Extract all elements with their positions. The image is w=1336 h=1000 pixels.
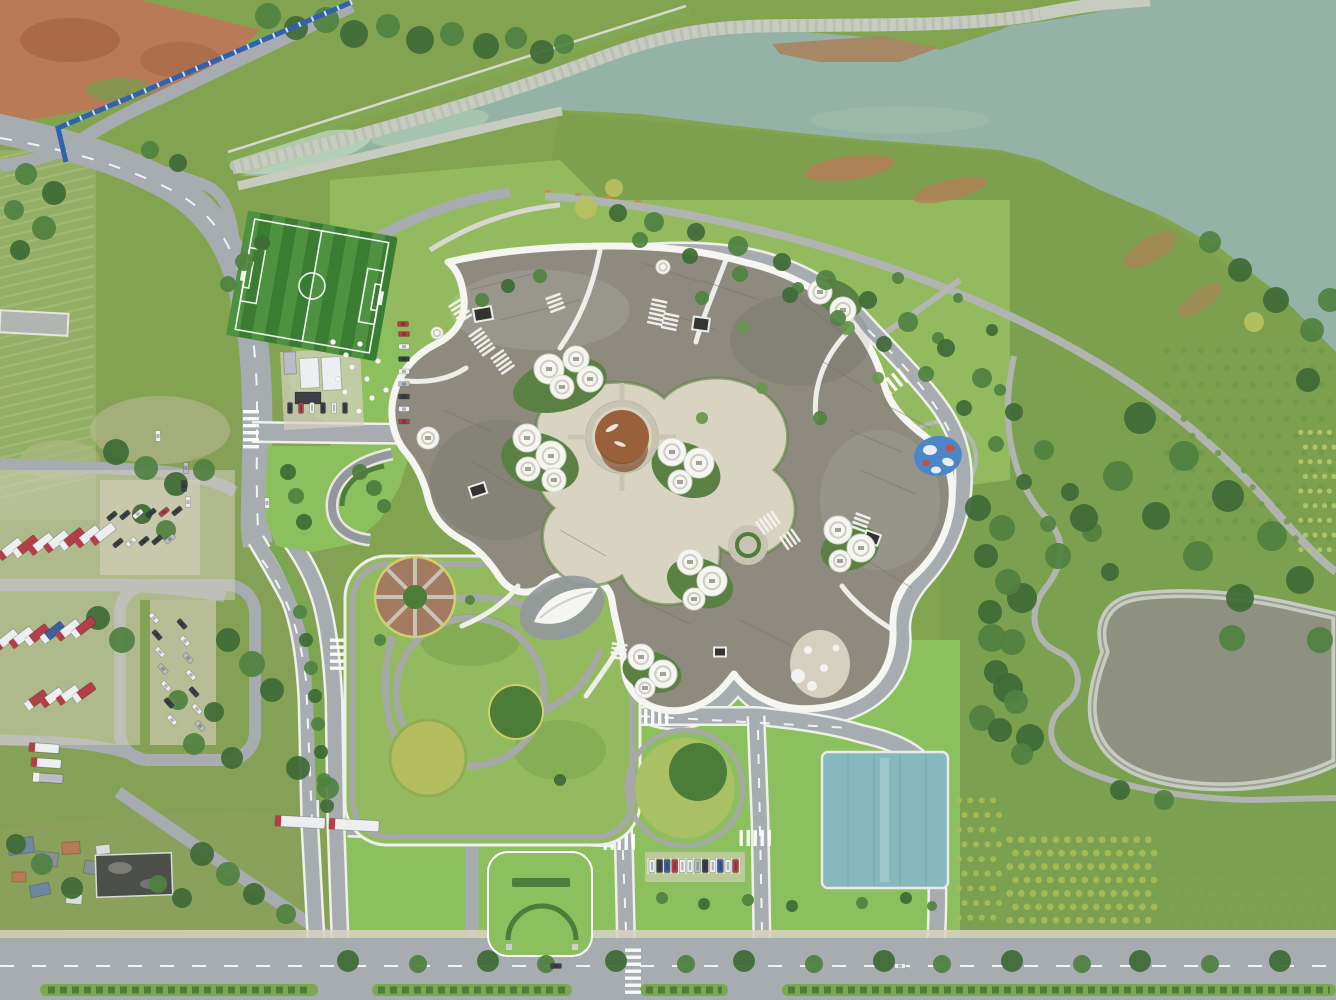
- parked-car: [310, 403, 315, 414]
- plantation-shrub: [1301, 347, 1307, 353]
- terrace-table: [820, 664, 828, 672]
- plantation-shrub: [979, 885, 985, 891]
- tree: [190, 842, 214, 866]
- plantation-shrub: [1145, 890, 1152, 897]
- plantation-shrub: [1116, 850, 1123, 857]
- crosswalk-bar: [625, 949, 641, 952]
- plantation-shrub: [1318, 450, 1324, 456]
- plantation-shrub: [1312, 532, 1317, 537]
- pod-hatch: [696, 461, 702, 465]
- rooftop-pod: [635, 678, 655, 698]
- parked-car: [399, 332, 410, 337]
- lawn-sculpture: [342, 389, 347, 394]
- plantation-shrub: [1318, 347, 1324, 353]
- tree: [15, 163, 37, 185]
- plantation-shrub: [1251, 876, 1257, 882]
- tree: [1263, 287, 1289, 313]
- tree: [254, 235, 270, 251]
- rooftop-pod: [658, 438, 686, 466]
- car-glass: [156, 434, 159, 438]
- plantation-shrub: [1232, 450, 1238, 456]
- tree: [10, 240, 30, 260]
- roadside-car: [264, 497, 269, 508]
- plantation-shrub: [1232, 347, 1238, 353]
- east-terrace: [790, 630, 850, 698]
- container-building: [283, 352, 296, 375]
- pod-hatch: [551, 478, 557, 482]
- plantation-shrub: [1322, 474, 1327, 479]
- plantation-shrub: [973, 871, 979, 877]
- plantation-shrub: [1172, 535, 1178, 541]
- plantation-shrub: [1070, 903, 1077, 910]
- rooftop-pod: [847, 534, 875, 562]
- plantation-shrub: [1292, 433, 1298, 439]
- plantation-shrub: [1198, 518, 1204, 524]
- tree: [813, 411, 827, 425]
- pod-hatch: [638, 655, 644, 659]
- plantation-shrub: [1308, 488, 1313, 493]
- plantation-shrub: [1267, 382, 1273, 388]
- roadside-car: [398, 322, 409, 327]
- tree: [501, 279, 515, 293]
- car-glass: [651, 862, 653, 870]
- plantation-shrub: [1215, 347, 1221, 353]
- street-tree: [1073, 955, 1091, 973]
- retention-pond: [1092, 594, 1336, 787]
- plantation-shrub: [1298, 488, 1303, 493]
- tree: [953, 293, 963, 303]
- truck-trailer: [275, 815, 326, 829]
- tree: [216, 862, 240, 886]
- crosswalk-bar: [768, 830, 771, 846]
- plantation-shrub: [1206, 501, 1212, 507]
- plantation-shrub: [1145, 863, 1152, 870]
- plantation-shrub: [1133, 890, 1140, 897]
- plantation-shrub: [1024, 903, 1031, 910]
- plantation-shrub: [1321, 905, 1327, 911]
- tree: [609, 204, 627, 222]
- plantation-shrub: [1257, 891, 1263, 897]
- plantation-shrub: [1241, 399, 1247, 405]
- pod-hatch: [677, 480, 683, 484]
- terrace-paving: [790, 630, 850, 698]
- tree: [255, 3, 281, 29]
- pod-hatch: [817, 290, 823, 294]
- tree: [656, 892, 668, 904]
- plantation-shrub: [1104, 877, 1111, 884]
- crosswalk-bar: [747, 830, 750, 846]
- plantation-shrub: [1298, 518, 1303, 523]
- plantation-shrub: [1298, 430, 1303, 435]
- tree: [1040, 516, 1056, 532]
- plantation-shrub: [1087, 917, 1094, 924]
- car-glass: [554, 964, 558, 967]
- tree: [900, 892, 912, 904]
- plantation-shrub: [1012, 850, 1019, 857]
- plantation-shrub: [1041, 917, 1048, 924]
- tree: [554, 774, 566, 786]
- plantation-shrub: [1258, 433, 1264, 439]
- plantation-shrub: [1189, 399, 1195, 405]
- pod-hatch: [642, 686, 648, 690]
- tree: [978, 600, 1002, 624]
- plantation-shrub: [1268, 920, 1274, 926]
- tree: [377, 499, 391, 513]
- plantation-shrub: [973, 841, 979, 847]
- car-glass: [689, 862, 691, 870]
- playground-shape: [931, 467, 941, 474]
- plantation-shrub: [1322, 444, 1327, 449]
- tree: [876, 336, 892, 352]
- tree: [988, 436, 1004, 452]
- plantation-shrub: [1312, 503, 1317, 508]
- plantation-shrub: [1286, 905, 1292, 911]
- roof-wear: [108, 862, 132, 874]
- roadside-car: [185, 496, 190, 507]
- tree: [696, 412, 708, 424]
- crosswalk-bar: [243, 410, 259, 413]
- plantation-shrub: [1116, 903, 1123, 910]
- plantation-shrub: [1122, 890, 1129, 897]
- plantation-shrub: [1284, 347, 1290, 353]
- pod-hatch: [835, 528, 841, 532]
- shrub-circle-green: [489, 685, 543, 739]
- tree: [530, 40, 554, 64]
- plantation-shrub: [1224, 399, 1230, 405]
- plantation-shrub: [1006, 890, 1013, 897]
- pod-hatch: [587, 377, 593, 381]
- tree: [898, 312, 918, 332]
- rooftop-pod: [824, 516, 852, 544]
- plantation-shrub: [956, 797, 962, 803]
- car-glass: [402, 382, 406, 385]
- plantation-shrub: [1312, 444, 1317, 449]
- crosswalk-bar: [754, 830, 757, 846]
- plantation-shrub: [1280, 920, 1286, 926]
- plantation-shrub: [1058, 877, 1065, 884]
- plantation-shrub: [1215, 382, 1221, 388]
- plantation-shrub: [1303, 503, 1308, 508]
- tree: [1257, 521, 1287, 551]
- tree: [352, 464, 368, 480]
- boulevard-median: [40, 984, 1336, 996]
- plantation-shrub: [1041, 863, 1048, 870]
- plantation-shrub: [1298, 876, 1304, 882]
- car-glass: [186, 500, 189, 504]
- plantation-shrub: [1309, 876, 1315, 882]
- parked-car: [679, 860, 685, 873]
- plantation-shrub: [1128, 877, 1135, 884]
- car-glass: [322, 404, 324, 411]
- parked-car: [343, 403, 348, 414]
- plantation-shrub: [1047, 903, 1054, 910]
- truck: [33, 772, 64, 783]
- truck: [275, 815, 326, 829]
- plantation-shrub: [1216, 876, 1222, 882]
- parked-car: [725, 860, 731, 873]
- plantation-shrub: [1064, 863, 1071, 870]
- plantation-shrub: [1206, 399, 1212, 405]
- plantation-shrub: [1303, 474, 1308, 479]
- plantation-shrub: [996, 812, 1002, 818]
- circle-inner-shrubs: [669, 743, 727, 801]
- car-glass: [333, 404, 335, 411]
- car-glass: [311, 404, 313, 411]
- plantation-shrub: [1172, 433, 1178, 439]
- tree: [1154, 790, 1174, 810]
- plantation-shrub: [1249, 347, 1255, 353]
- flower-circle-yellow: [390, 720, 466, 796]
- plantation-shrub: [1310, 467, 1316, 473]
- plantation-shrub: [1327, 891, 1333, 897]
- street-tree: [933, 955, 951, 973]
- tree: [728, 236, 748, 256]
- plantation-shrub: [1006, 836, 1013, 843]
- plantation-shrub: [973, 812, 979, 818]
- truck-cab: [275, 815, 282, 826]
- roadside-car: [895, 964, 906, 969]
- tree: [782, 287, 798, 303]
- plantation-shrub: [1122, 836, 1129, 843]
- plantation-shrub: [1327, 920, 1333, 926]
- pod-hatch: [837, 559, 843, 563]
- tree: [221, 747, 243, 769]
- plantation-shrub: [1258, 364, 1264, 370]
- car-glass: [727, 862, 729, 870]
- plantation-shrub: [990, 797, 996, 803]
- street-tree: [477, 950, 499, 972]
- crosswalk-bar: [243, 417, 259, 420]
- pod-hatch: [425, 436, 431, 440]
- tree: [204, 702, 224, 722]
- plantation-shrub: [1303, 444, 1308, 449]
- plantation-shrub: [1047, 850, 1054, 857]
- plantation-shrub: [1087, 863, 1094, 870]
- car-glass: [402, 395, 406, 398]
- plantation-shrub: [1110, 917, 1117, 924]
- tree: [695, 291, 709, 305]
- rooftop-pod: [542, 468, 566, 492]
- plantation-shrub: [1298, 547, 1303, 552]
- plantation-shrub: [996, 900, 1002, 906]
- crosswalk-bar: [243, 424, 259, 427]
- truck-cab: [31, 757, 38, 766]
- plantation-shrub: [1317, 459, 1322, 464]
- plantation-shrub: [1081, 877, 1088, 884]
- plantation-shrub: [1224, 433, 1230, 439]
- plantation-shrub: [990, 885, 996, 891]
- lawn-sculpture: [330, 339, 335, 344]
- plantation-shrub: [1206, 467, 1212, 473]
- tree: [304, 661, 318, 675]
- plantation-shrub: [1047, 877, 1054, 884]
- plantation-shrub: [1249, 382, 1255, 388]
- plantation-shrub: [1012, 877, 1019, 884]
- terrace-canopy: [791, 669, 805, 683]
- tree: [311, 717, 325, 731]
- lawn-sculpture: [364, 376, 369, 381]
- plantation-shrub: [990, 915, 996, 921]
- tree: [856, 897, 868, 909]
- plantation-shrub: [1198, 920, 1204, 926]
- crosswalk-bar: [625, 970, 641, 973]
- tree: [1110, 780, 1130, 800]
- car-glass: [712, 862, 714, 870]
- container-building: [295, 392, 321, 404]
- plantation-shrub: [1317, 430, 1322, 435]
- plantation-shrub: [1087, 890, 1094, 897]
- plantation-shrub: [1186, 920, 1192, 926]
- plantation-shrub: [1275, 501, 1281, 507]
- tree: [314, 745, 328, 759]
- lawn-sculpture: [335, 376, 340, 381]
- tree: [6, 834, 26, 854]
- parked-car: [399, 382, 410, 387]
- terrace-canopy: [807, 681, 817, 691]
- plantation-shrub: [962, 900, 968, 906]
- roadside-car: [183, 462, 188, 473]
- plantation-shrub: [1292, 501, 1298, 507]
- truck: [29, 742, 60, 753]
- plantation-shrub: [1304, 920, 1310, 926]
- plantation-shrub: [1315, 920, 1321, 926]
- tree: [296, 514, 312, 530]
- tree: [293, 605, 307, 619]
- plantation-shrub: [1308, 547, 1313, 552]
- car-glass: [697, 862, 699, 870]
- crosswalk-bar: [625, 991, 641, 994]
- plantation-shrub: [1093, 903, 1100, 910]
- plantation-shrub: [1215, 416, 1221, 422]
- plantation-shrub: [1239, 876, 1245, 882]
- tree: [1199, 231, 1221, 253]
- plantation-shrub: [1018, 863, 1025, 870]
- plantation-shrub: [1076, 863, 1083, 870]
- plantation-shrub: [1267, 450, 1273, 456]
- plantation-shrub: [1099, 917, 1106, 924]
- tree: [1296, 368, 1320, 392]
- plantation-shrub: [1263, 905, 1269, 911]
- parked-car: [687, 860, 693, 873]
- plantation-shrub: [1267, 416, 1273, 422]
- plantation-shrub: [1181, 416, 1187, 422]
- tree: [859, 291, 877, 309]
- tree: [989, 515, 1015, 541]
- plantation-shrub: [1099, 890, 1106, 897]
- pod-hatch: [546, 367, 552, 371]
- car-glass: [719, 862, 721, 870]
- plantation-shrub: [1280, 891, 1286, 897]
- parked-car: [399, 357, 410, 362]
- pod-hatch: [709, 579, 715, 583]
- plantation-shrub: [1245, 920, 1251, 926]
- tree: [1286, 566, 1314, 594]
- plantation-shrub: [1215, 518, 1221, 524]
- street-tree: [1001, 950, 1023, 972]
- tree: [1004, 690, 1028, 714]
- plantation-shrub: [1274, 905, 1280, 911]
- water-streak: [810, 106, 990, 134]
- plantation-shrub: [1172, 364, 1178, 370]
- car-glass: [401, 322, 405, 325]
- tree: [243, 883, 265, 905]
- tree: [554, 34, 574, 54]
- plantation-shrub: [1163, 484, 1169, 490]
- crosswalk-bar: [243, 445, 259, 448]
- plantation-shrub: [1239, 905, 1245, 911]
- plantation-shrub: [1198, 484, 1204, 490]
- roadside-car: [181, 480, 186, 491]
- roadside-car: [551, 964, 562, 969]
- tree: [644, 212, 664, 232]
- plantation-shrub: [967, 797, 973, 803]
- plantation-shrub: [1087, 836, 1094, 843]
- plantation-shrub: [1024, 850, 1031, 857]
- plantation-shrub: [1232, 518, 1238, 524]
- plantation-shrub: [1053, 836, 1060, 843]
- plantation-shrub: [979, 827, 985, 833]
- rooftop-pod: [536, 441, 566, 471]
- parked-car: [399, 344, 410, 349]
- tree: [830, 310, 846, 326]
- plantation-shrub: [1053, 863, 1060, 870]
- tree: [172, 888, 192, 908]
- house: [12, 872, 26, 882]
- lawn-sculpture: [383, 387, 388, 392]
- tree: [1034, 440, 1054, 460]
- lawn-sculpture: [356, 408, 361, 413]
- tree: [986, 324, 998, 336]
- plantation-shrub: [1258, 467, 1264, 473]
- tree: [440, 22, 464, 46]
- playground-shape: [945, 445, 955, 452]
- rooftop-pod: [683, 588, 705, 610]
- plantation-shrub: [1058, 903, 1065, 910]
- plantation-shrub: [1258, 399, 1264, 405]
- plantation-shrub: [1064, 836, 1071, 843]
- plantation-shrub: [1122, 863, 1129, 870]
- playground-shape: [922, 460, 930, 466]
- plantation-shrub: [1133, 917, 1140, 924]
- tree: [61, 877, 83, 899]
- parked-car: [299, 403, 304, 414]
- plantation-shrub: [1133, 863, 1140, 870]
- parked-car: [288, 403, 293, 414]
- tree: [1183, 541, 1213, 571]
- plantation-shrub: [1206, 433, 1212, 439]
- parked-car: [399, 419, 410, 424]
- tree: [533, 269, 547, 283]
- house: [96, 844, 111, 854]
- plantation-shrub: [1292, 399, 1298, 405]
- plantation-shrub: [1099, 863, 1106, 870]
- plantation-shrub: [1076, 836, 1083, 843]
- rooftop-pod: [628, 644, 654, 670]
- plantation-shrub: [1286, 876, 1292, 882]
- plantation-shrub: [1275, 364, 1281, 370]
- plantation-shrub: [1189, 535, 1195, 541]
- tree: [965, 495, 991, 521]
- pond-water: [1092, 594, 1336, 787]
- car-glass: [402, 332, 406, 335]
- plantation-shrub: [956, 856, 962, 862]
- tree: [1169, 441, 1199, 471]
- plantation-shrub: [979, 797, 985, 803]
- plantation-shrub: [1018, 890, 1025, 897]
- tree: [286, 756, 310, 780]
- gate-pillar: [506, 944, 512, 950]
- tree: [1300, 318, 1324, 342]
